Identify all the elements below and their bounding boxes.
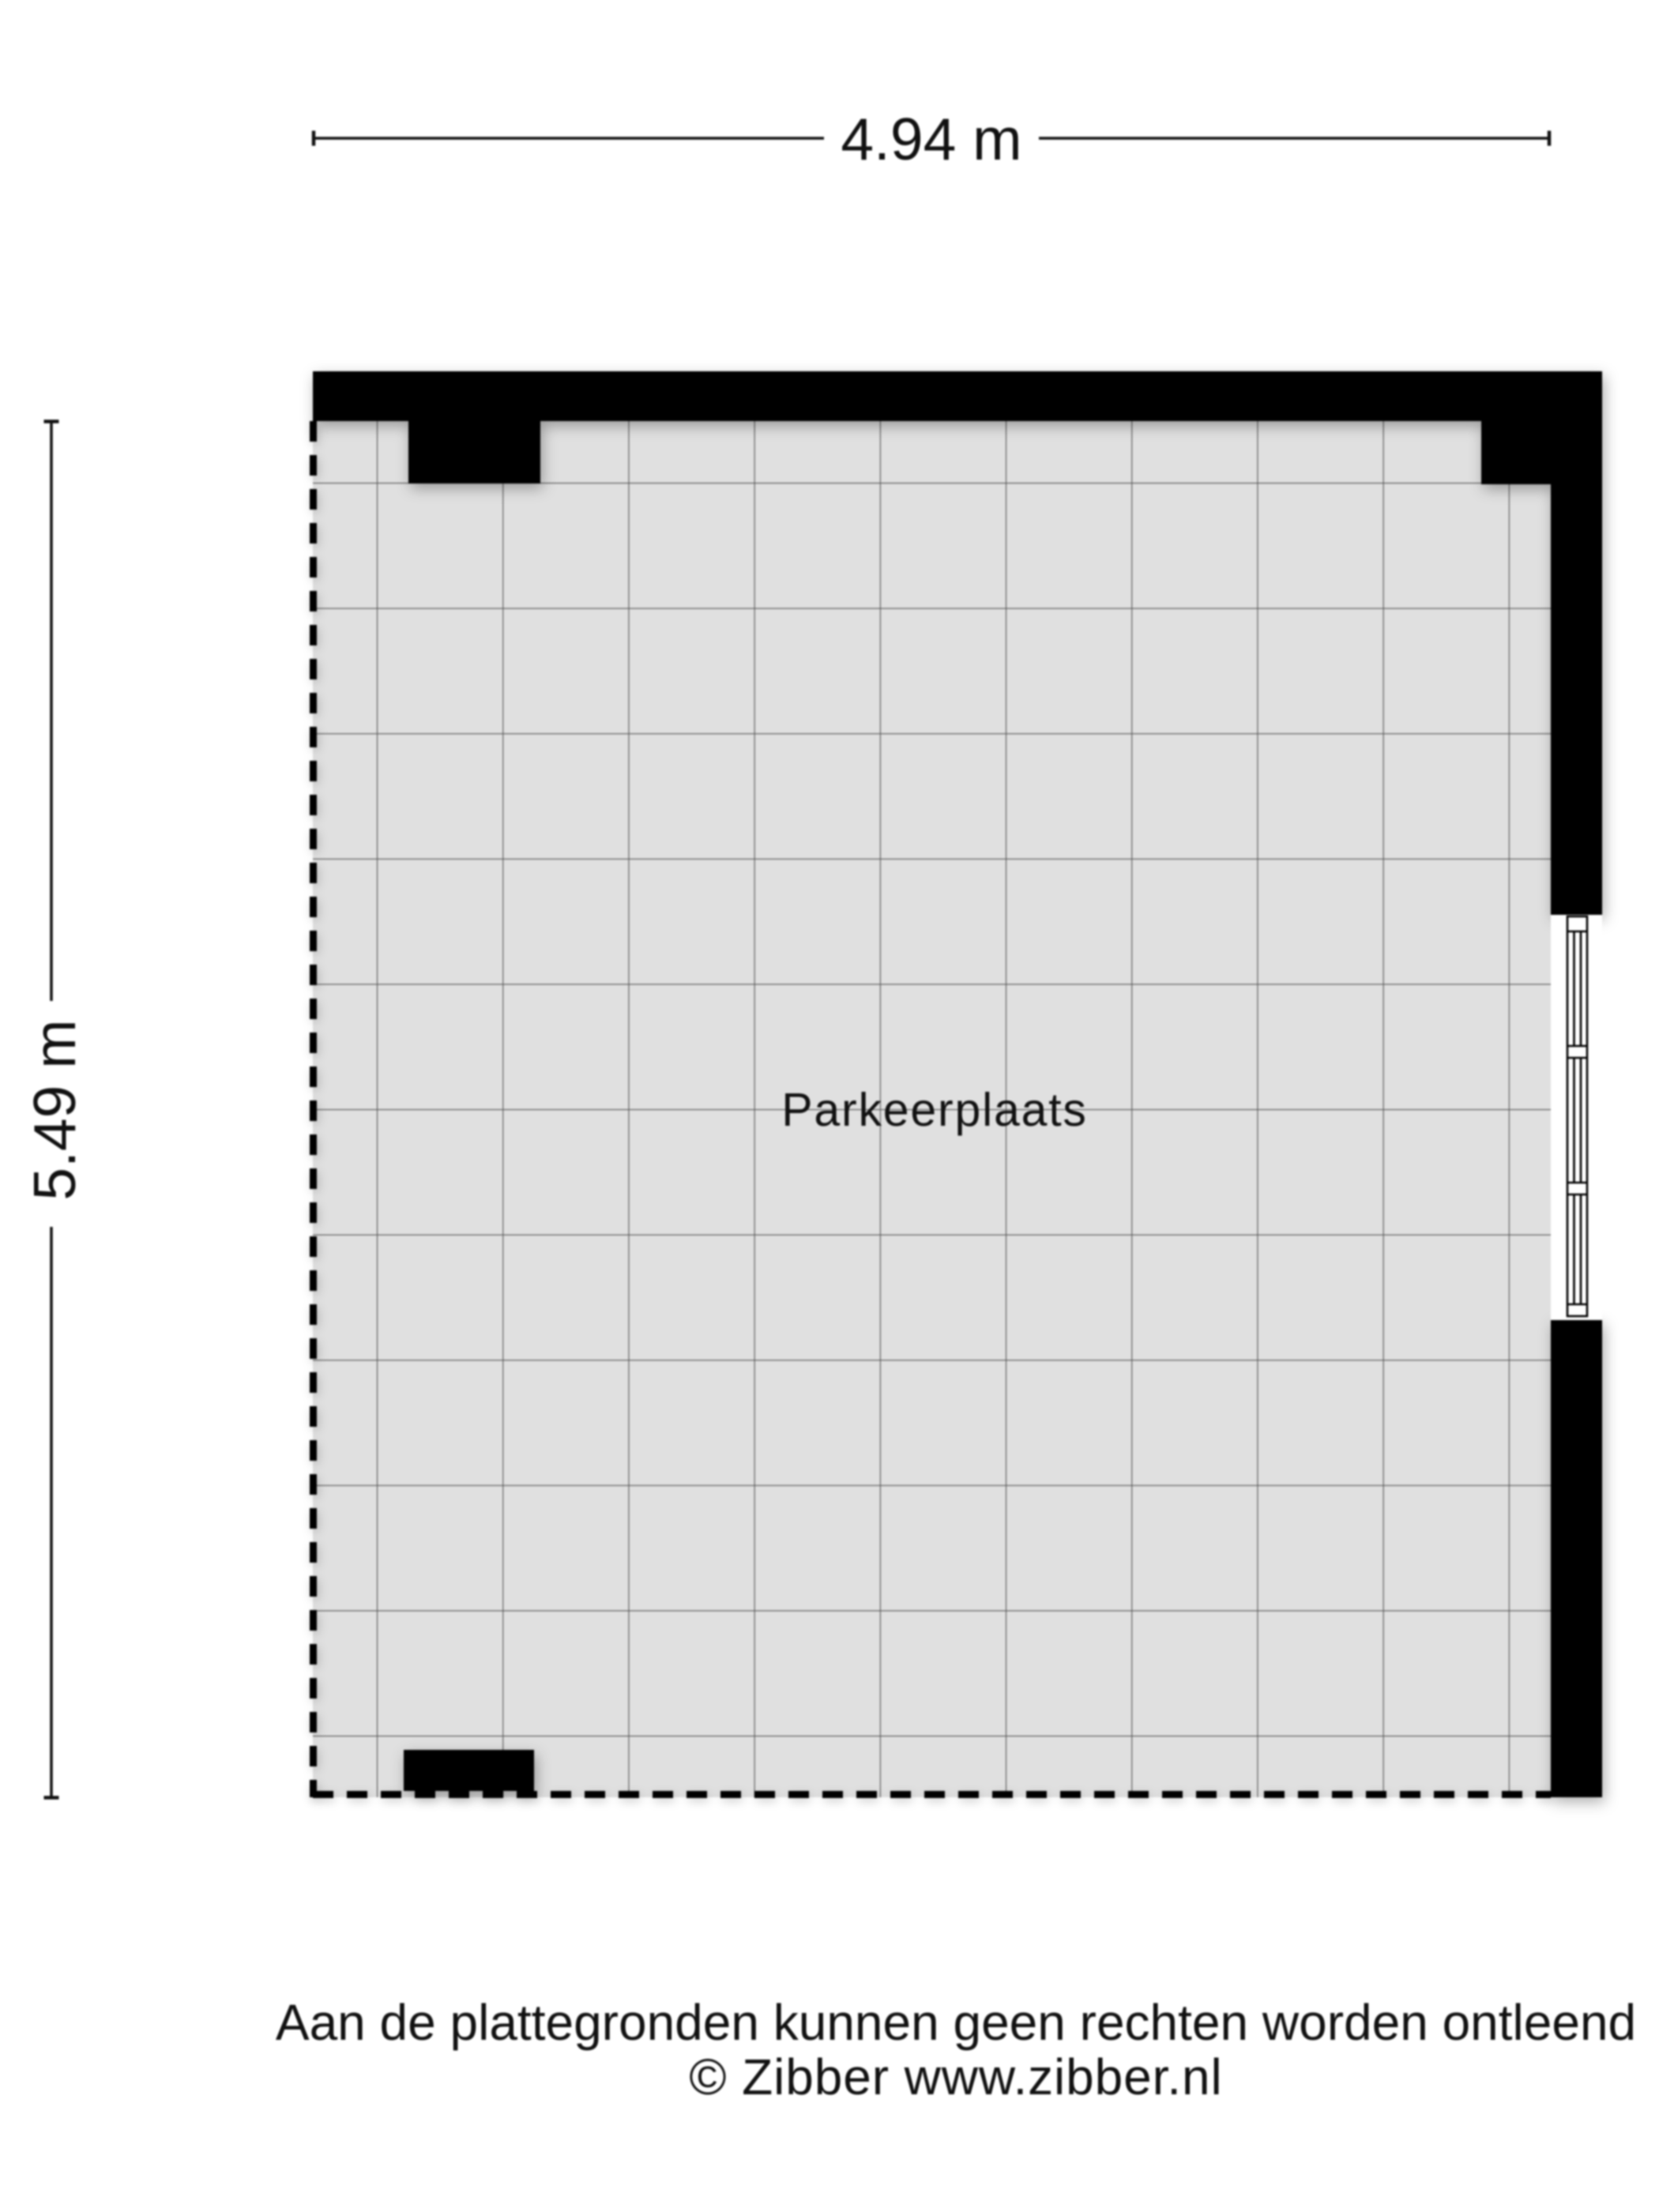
- svg-text:5.49 m: 5.49 m: [21, 1019, 88, 1200]
- svg-text:© Zibber www.zibber.nl: © Zibber www.zibber.nl: [689, 2048, 1222, 2105]
- svg-text:Parkeerplaats: Parkeerplaats: [781, 1084, 1087, 1136]
- svg-text:4.94 m: 4.94 m: [841, 106, 1021, 172]
- svg-text:Aan de plattegronden kunnen ge: Aan de plattegronden kunnen geen rechten…: [276, 1994, 1636, 2051]
